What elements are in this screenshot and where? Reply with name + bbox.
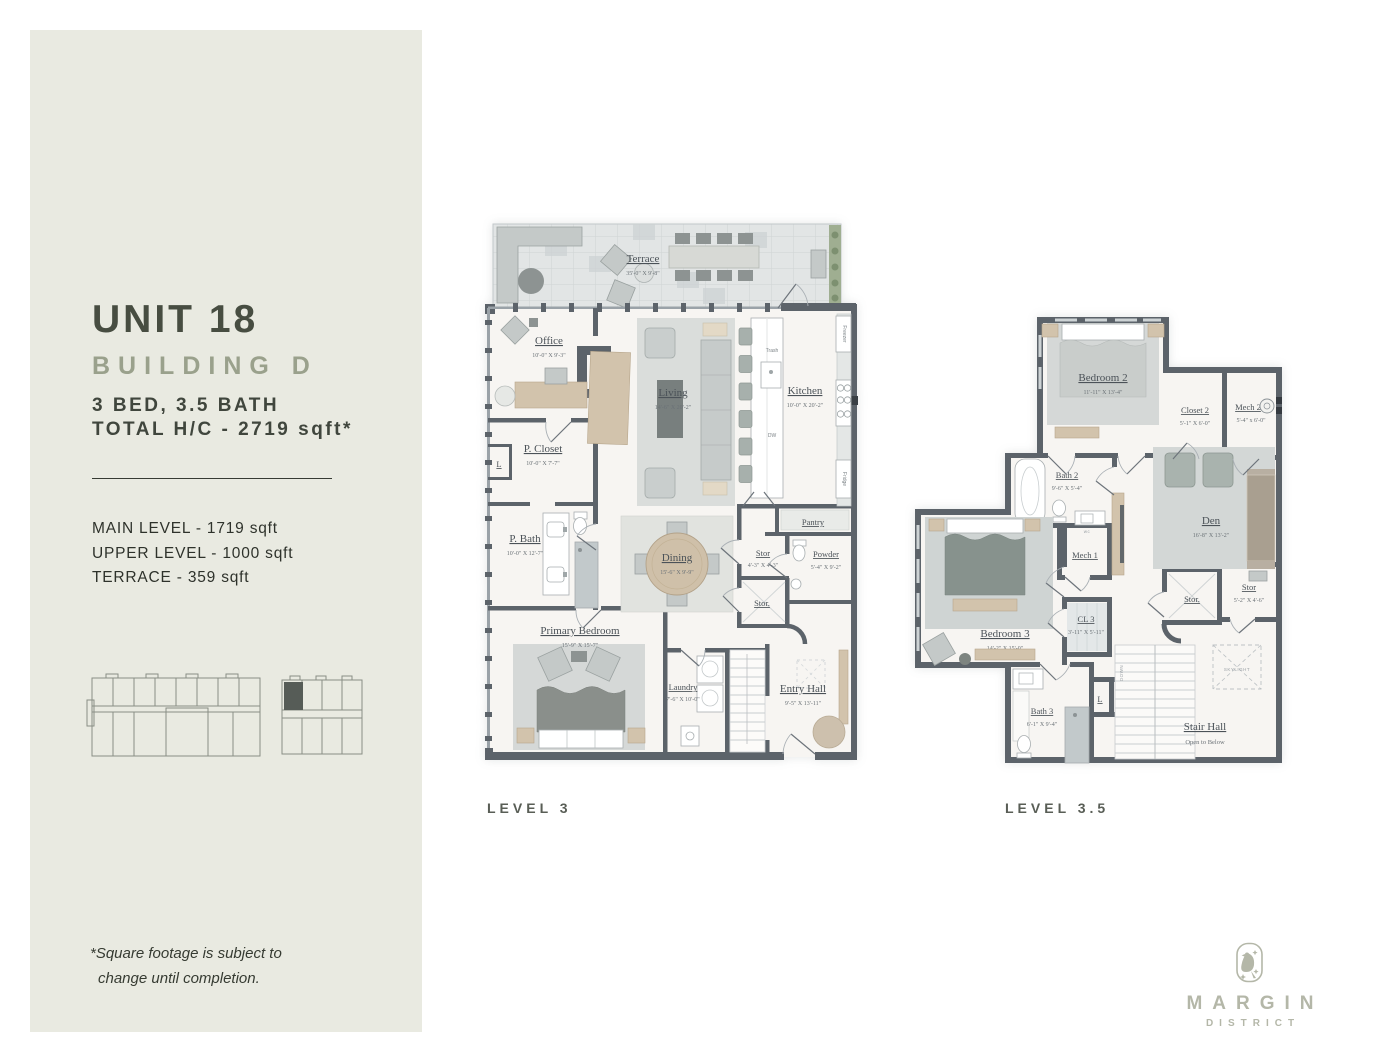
p-bath-label: P. Bath bbox=[509, 533, 541, 545]
living-zone: Living 14'-6" X 20'-2" bbox=[637, 318, 735, 506]
bath3-label: Bath 3 bbox=[1031, 706, 1053, 716]
bed-bath-spec: 3 BED, 3.5 BATH bbox=[92, 395, 279, 417]
closet2-dims: 5'-1" X 6'-0" bbox=[1180, 421, 1211, 427]
primary-bedroom-label: Primary Bedroom bbox=[540, 625, 620, 637]
bedroom2-label: Bedroom 2 bbox=[1078, 372, 1127, 384]
terrace-area: TERRACE - 359 sqft bbox=[92, 569, 249, 587]
key-plan-right-building bbox=[282, 676, 362, 754]
skylight-label: SKYLIGHT bbox=[1224, 667, 1250, 672]
down-label: DOWN bbox=[1119, 665, 1124, 681]
wc-label: wc bbox=[1084, 529, 1091, 534]
unit-title: UNIT 18 bbox=[92, 298, 258, 342]
cl3-dims: 3'-11" X 5'-11" bbox=[1068, 630, 1104, 636]
living-label: Living bbox=[658, 387, 688, 399]
office-dims: 10'-0" X 9'-3" bbox=[532, 353, 566, 359]
kitchen-dims: 10'-0" X 20'-2" bbox=[787, 403, 824, 409]
key-plan-left-building bbox=[87, 674, 260, 756]
terrace-zone: Terrace 35'-0" X 9'-8" bbox=[493, 224, 841, 308]
entry-hall-dims: 9'-5" X 13'-11" bbox=[785, 701, 822, 707]
kitchen-label: Kitchen bbox=[788, 385, 823, 397]
cl3-zone: CL 3 3'-11" X 5'-11" bbox=[1067, 603, 1107, 651]
open-to-below-label: Open to Below bbox=[1185, 739, 1225, 746]
p-closet-label: P. Closet bbox=[524, 443, 563, 455]
footnote-line1: *Square footage is subject to bbox=[90, 942, 282, 967]
stor-a-label: Stor. bbox=[1184, 594, 1200, 604]
office-label: Office bbox=[535, 335, 563, 347]
bedroom3-label: Bedroom 3 bbox=[980, 628, 1030, 640]
primary-bedroom-dims: 15'-9" X 15'-7" bbox=[562, 643, 599, 649]
media-feature-wall bbox=[587, 351, 630, 444]
laundry-label: Laundry bbox=[669, 682, 699, 692]
terrace-dims: 35'-0" X 9'-8" bbox=[626, 271, 660, 277]
dining-zone: Dining 15'-6" X 9'-9" bbox=[621, 516, 733, 612]
building-key-plan bbox=[86, 666, 368, 770]
entry-hall-label: Entry Hall bbox=[780, 683, 826, 695]
dishwasher-label: DW bbox=[768, 433, 777, 439]
trash-label: Trash bbox=[766, 348, 779, 354]
level-3-floor-plan: Terrace 35'-0" X 9'-8" bbox=[485, 220, 860, 768]
main-level-area: MAIN LEVEL - 1719 sqft bbox=[92, 520, 278, 538]
footnote: *Square footage is subject to change unt… bbox=[90, 942, 282, 992]
margin-district-logo: MARGIN DISTRICT bbox=[1158, 942, 1342, 1029]
mech2-dims: 5'-4" x 6'-0" bbox=[1236, 418, 1266, 424]
floorplan-sheet: { "sidebar": { "unit_title": "UNIT 18", … bbox=[0, 0, 1375, 1062]
powder-label: Powder bbox=[813, 549, 839, 559]
dining-dims: 15'-6" X 9'-9" bbox=[660, 570, 694, 576]
freezer-label: Freezer bbox=[841, 325, 847, 343]
laundry-dims: 7'-6" X 10'-0" bbox=[666, 697, 700, 703]
logo-brand-text: MARGIN bbox=[1168, 993, 1342, 1015]
stor-b-label: Stor bbox=[1242, 582, 1256, 592]
unit-18-location-marker bbox=[284, 682, 303, 710]
stairs-up bbox=[730, 650, 765, 752]
bath2-dims: 9'-6" X 5'-4" bbox=[1052, 486, 1083, 492]
footnote-line2: change until completion. bbox=[98, 967, 282, 992]
info-sidebar: UNIT 18 BUILDING D 3 BED, 3.5 BATH TOTAL… bbox=[30, 30, 422, 1032]
stair-hall-label: Stair Hall bbox=[1184, 721, 1226, 733]
level-3-5-caption: LEVEL 3.5 bbox=[1005, 800, 1109, 816]
mech2-label: Mech 2 bbox=[1235, 402, 1261, 412]
closet2-label: Closet 2 bbox=[1181, 405, 1209, 415]
cl3-label: CL 3 bbox=[1078, 614, 1095, 624]
level-3-5-floor-plan: Bedroom 2 11'-11" X 13'-4" Closet 2 5'-1… bbox=[915, 315, 1287, 767]
logo-bird-badge-icon bbox=[1220, 942, 1280, 984]
mech1-label: Mech 1 bbox=[1072, 550, 1098, 560]
bedroom2-zone: Bedroom 2 11'-11" X 13'-4" bbox=[1042, 323, 1164, 438]
bath3-dims: 6'-1" X 9'-4" bbox=[1027, 722, 1058, 728]
divider-line bbox=[92, 478, 332, 479]
stor2-label: Stor. bbox=[754, 598, 770, 608]
p-closet-dims: 10'-0" X 7'-7" bbox=[526, 461, 560, 467]
logo-sub-text: DISTRICT bbox=[1164, 1018, 1342, 1029]
bedroom2-dims: 11'-11" X 13'-4" bbox=[1084, 390, 1123, 396]
bath2-label: Bath 2 bbox=[1056, 470, 1078, 480]
den-label: Den bbox=[1202, 515, 1221, 527]
den-dims: 16'-8" X 13'-2" bbox=[1193, 533, 1230, 539]
terrace-label: Terrace bbox=[627, 253, 660, 265]
p-bath-dims: 10'-0" X 12'-7" bbox=[507, 551, 544, 557]
living-dims: 14'-6" X 20'-2" bbox=[655, 405, 692, 411]
linen-label: L bbox=[496, 459, 501, 469]
dining-label: Dining bbox=[662, 552, 693, 564]
pantry-label: Pantry bbox=[802, 517, 825, 527]
linen35-label: L bbox=[1097, 694, 1102, 704]
stor-b-dims: 5'-2" X 4'-6" bbox=[1234, 598, 1265, 604]
level-3-caption: LEVEL 3 bbox=[487, 800, 572, 816]
fridge-label: Fridge bbox=[841, 472, 847, 486]
stor1-label: Stor bbox=[756, 548, 770, 558]
upper-level-area: UPPER LEVEL - 1000 sqft bbox=[92, 545, 293, 563]
building-subtitle: BUILDING D bbox=[92, 352, 318, 381]
total-area-spec: TOTAL H/C - 2719 sqft* bbox=[92, 419, 353, 441]
powder-dims: 5'-4" X 9'-2" bbox=[811, 565, 842, 571]
